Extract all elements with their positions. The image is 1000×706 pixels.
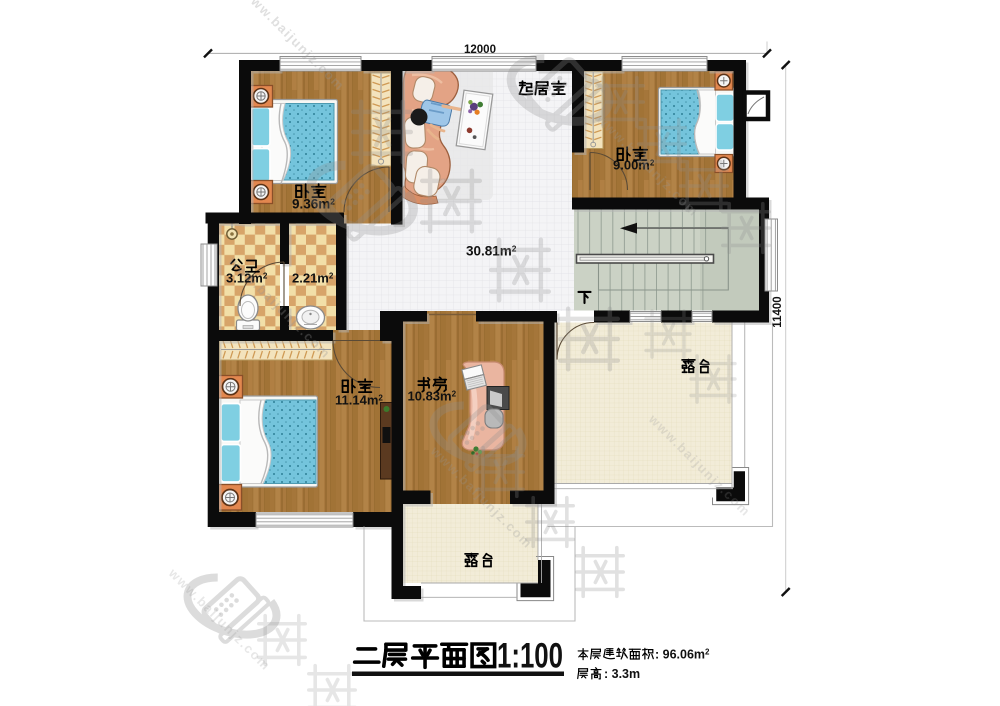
svg-text:12000: 12000 (464, 44, 496, 56)
svg-text:2.21m2: 2.21m2 (292, 271, 334, 286)
svg-text:: 96.06m2: : 96.06m2 (655, 648, 710, 662)
svg-text:10.83m2: 10.83m2 (408, 389, 457, 404)
svg-text:1:100: 1:100 (497, 637, 563, 676)
svg-text:: 3.3m: : 3.3m (604, 667, 640, 681)
svg-text:11.14m2: 11.14m2 (335, 393, 383, 408)
svg-text:11400: 11400 (772, 296, 784, 327)
